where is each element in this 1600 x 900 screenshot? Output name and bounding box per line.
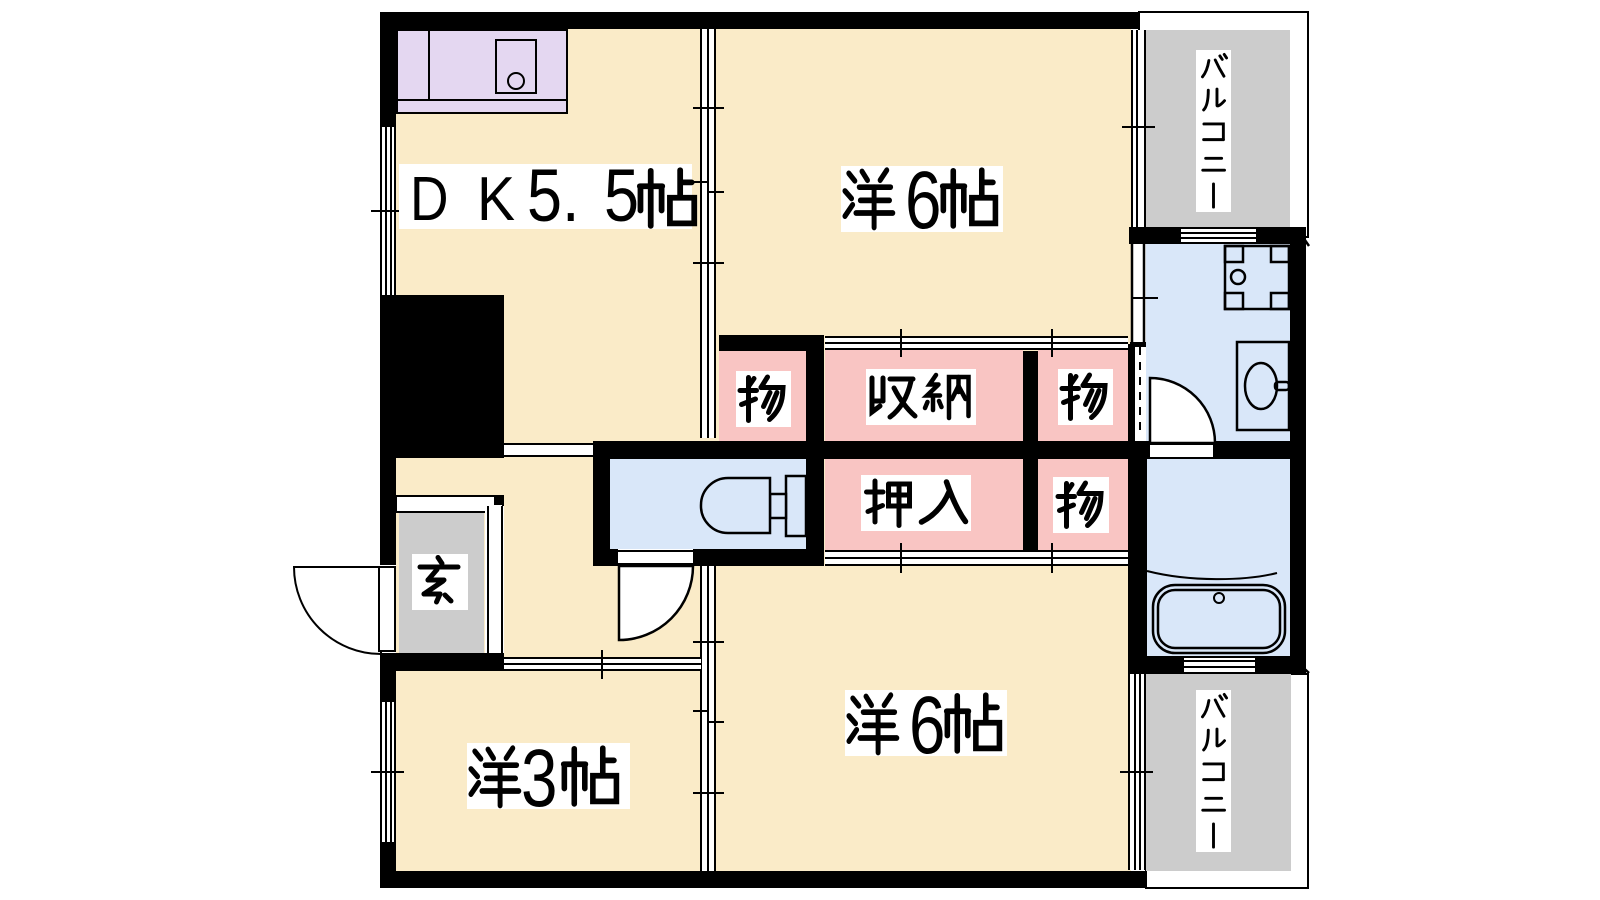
svg-text:5: 5 — [604, 154, 639, 237]
svg-text:K: K — [477, 164, 515, 234]
svg-text:3: 3 — [521, 732, 557, 824]
svg-text:6: 6 — [909, 679, 945, 771]
svg-text:6: 6 — [905, 154, 941, 246]
svg-text:D: D — [410, 165, 449, 234]
svg-text:5: 5 — [527, 154, 562, 237]
svg-text:.: . — [562, 154, 579, 237]
